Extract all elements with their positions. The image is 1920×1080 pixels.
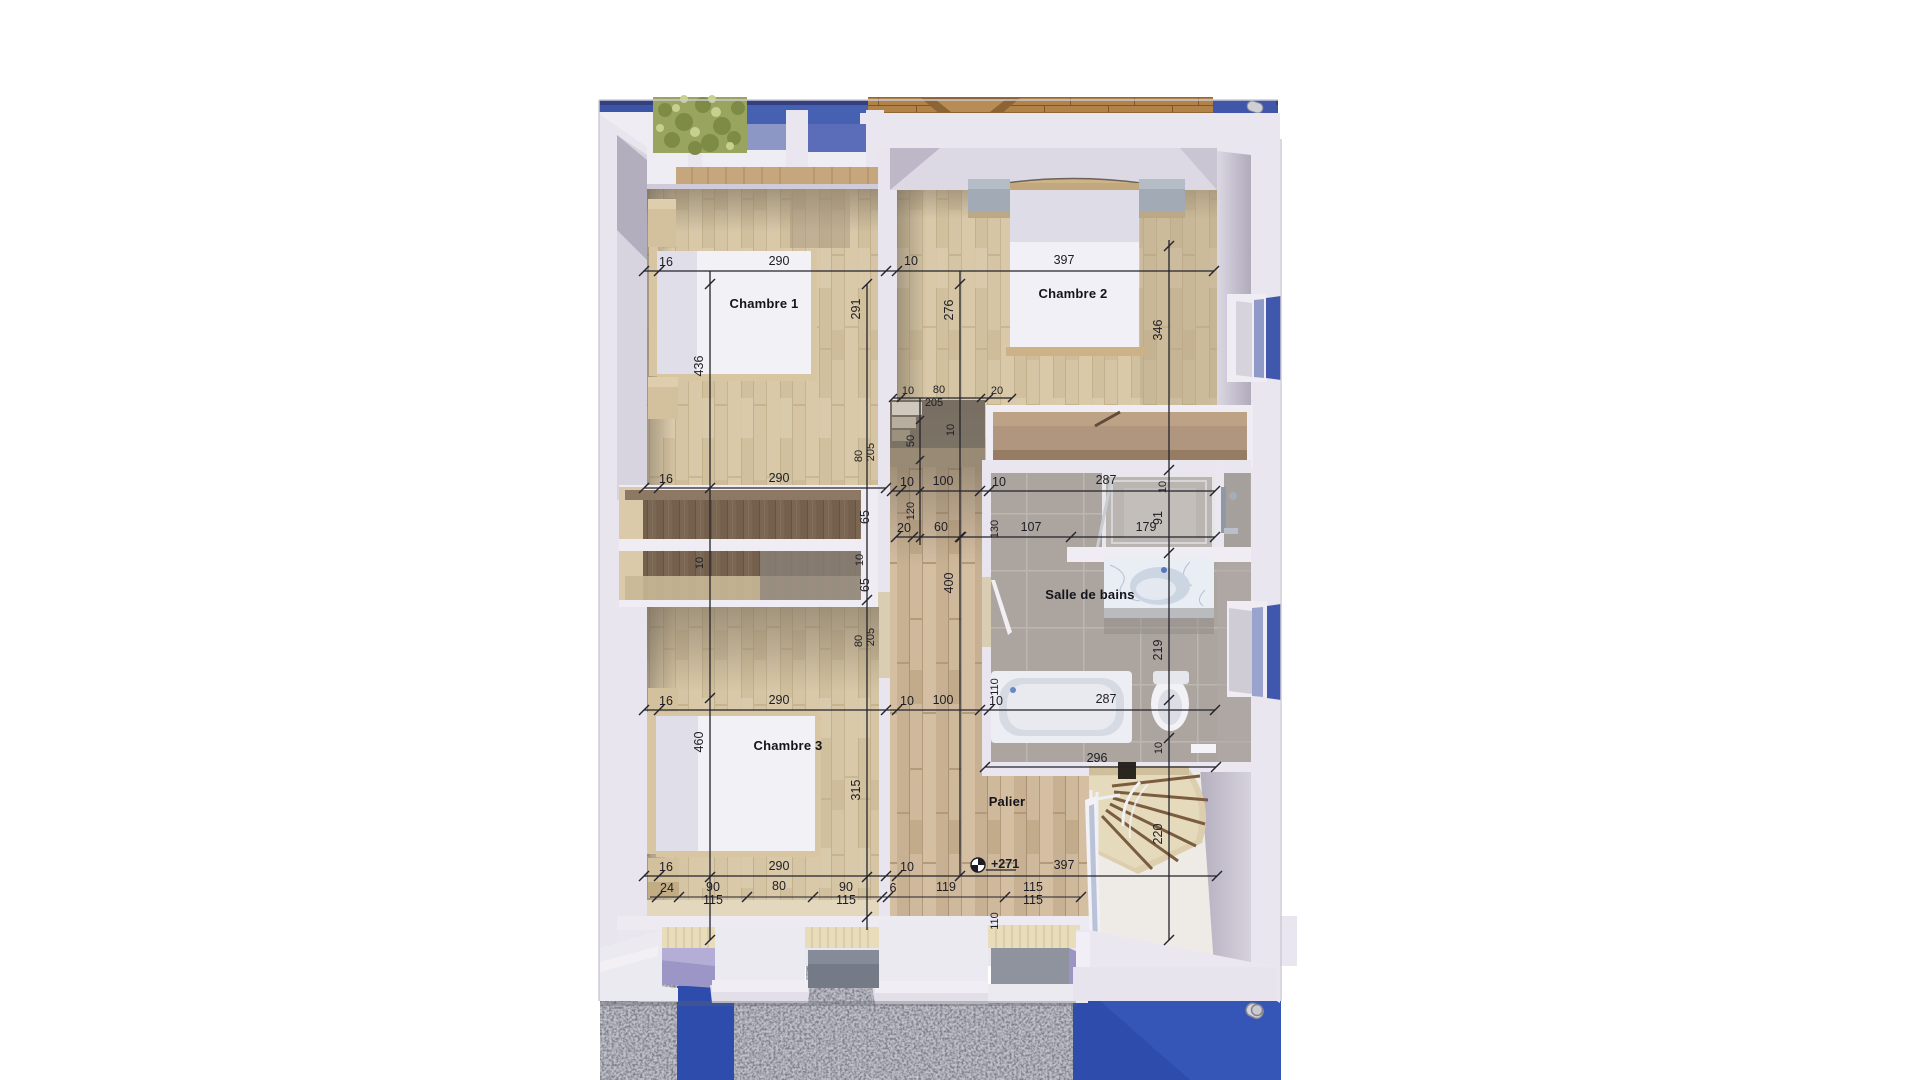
- svg-text:65: 65: [858, 578, 872, 592]
- svg-text:Chambre 2: Chambre 2: [1039, 286, 1108, 301]
- svg-text:276: 276: [942, 300, 956, 321]
- svg-text:10: 10: [1157, 481, 1169, 493]
- svg-text:290: 290: [769, 254, 790, 268]
- svg-text:290: 290: [769, 859, 790, 873]
- svg-text:287: 287: [1096, 692, 1117, 706]
- svg-text:80: 80: [853, 635, 865, 647]
- svg-text:16: 16: [659, 472, 673, 486]
- svg-text:Palier: Palier: [989, 794, 1026, 809]
- svg-text:115: 115: [1023, 880, 1043, 894]
- svg-text:10: 10: [992, 475, 1006, 489]
- svg-text:115: 115: [703, 893, 723, 907]
- svg-text:10: 10: [900, 694, 914, 708]
- svg-text:130: 130: [989, 520, 1001, 538]
- svg-text:10: 10: [1153, 742, 1165, 754]
- svg-text:120: 120: [905, 502, 917, 520]
- svg-text:119: 119: [936, 880, 956, 894]
- svg-text:100: 100: [933, 474, 954, 488]
- svg-text:205: 205: [865, 628, 877, 646]
- svg-text:10: 10: [900, 860, 914, 874]
- svg-text:290: 290: [769, 693, 790, 707]
- svg-text:10: 10: [854, 554, 866, 566]
- svg-text:115: 115: [1023, 893, 1043, 907]
- svg-text:296: 296: [1087, 751, 1108, 765]
- svg-text:80: 80: [853, 450, 865, 462]
- svg-text:+271: +271: [991, 857, 1019, 871]
- svg-text:24: 24: [660, 881, 674, 895]
- svg-text:Salle de bains: Salle de bains: [1045, 587, 1135, 602]
- svg-text:90: 90: [839, 880, 853, 894]
- svg-text:110: 110: [989, 678, 1001, 696]
- svg-text:90: 90: [706, 880, 720, 894]
- svg-text:110: 110: [989, 912, 1001, 930]
- svg-text:80: 80: [933, 384, 945, 396]
- svg-text:400: 400: [942, 573, 956, 594]
- svg-text:397: 397: [1054, 253, 1075, 267]
- svg-text:115: 115: [836, 893, 856, 907]
- svg-text:10: 10: [694, 557, 706, 569]
- svg-text:291: 291: [849, 299, 863, 320]
- svg-text:460: 460: [692, 732, 706, 753]
- svg-text:287: 287: [1096, 473, 1117, 487]
- svg-text:50: 50: [905, 435, 917, 447]
- svg-text:Chambre 3: Chambre 3: [754, 738, 823, 753]
- svg-text:219: 219: [1151, 640, 1165, 661]
- svg-text:205: 205: [865, 443, 877, 461]
- svg-text:107: 107: [1021, 520, 1042, 534]
- svg-text:100: 100: [933, 693, 954, 707]
- svg-text:Chambre 1: Chambre 1: [730, 296, 799, 311]
- svg-text:220: 220: [1151, 824, 1165, 845]
- svg-text:315: 315: [849, 780, 863, 801]
- svg-text:346: 346: [1151, 320, 1165, 341]
- svg-text:16: 16: [659, 860, 673, 874]
- svg-text:16: 16: [659, 694, 673, 708]
- svg-text:10: 10: [902, 385, 914, 397]
- svg-text:436: 436: [692, 356, 706, 377]
- svg-text:60: 60: [934, 520, 948, 534]
- svg-text:91: 91: [1151, 511, 1165, 525]
- svg-text:205: 205: [925, 397, 943, 409]
- svg-text:16: 16: [659, 255, 673, 269]
- svg-text:65: 65: [858, 510, 872, 524]
- svg-text:20: 20: [897, 521, 911, 535]
- svg-text:80: 80: [772, 879, 786, 893]
- svg-text:10: 10: [904, 254, 918, 268]
- svg-text:20: 20: [991, 385, 1003, 397]
- svg-text:10: 10: [945, 424, 957, 436]
- svg-text:397: 397: [1054, 858, 1075, 872]
- svg-text:6: 6: [890, 881, 897, 895]
- svg-text:10: 10: [900, 475, 914, 489]
- svg-text:290: 290: [769, 471, 790, 485]
